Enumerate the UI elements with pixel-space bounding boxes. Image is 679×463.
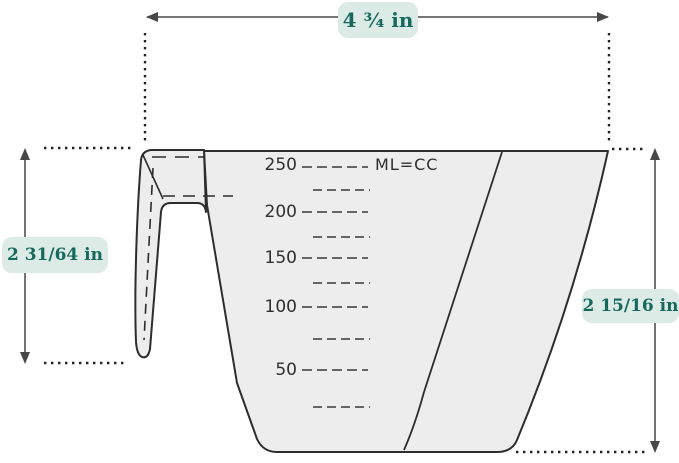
scale-label-150: 150 xyxy=(249,249,297,267)
dimension-label-height-left: 2 31/64 in xyxy=(2,237,108,273)
unit-label: ML=CC xyxy=(375,156,438,174)
dimension-label-height-right: 2 15/16 in xyxy=(582,289,679,323)
arrowhead-up xyxy=(20,148,30,160)
arrowhead-right xyxy=(597,12,609,22)
arrowhead-down xyxy=(20,352,30,364)
scale-label-200: 200 xyxy=(249,203,297,221)
dimension-label-width: 4 ¾ in xyxy=(338,2,418,38)
scale-label-100: 100 xyxy=(249,298,297,316)
scale-label-250: 250 xyxy=(249,156,297,174)
scale-label-50: 50 xyxy=(249,361,297,379)
measuring-cup-drawing xyxy=(0,0,679,463)
arrowhead-up xyxy=(650,148,660,160)
arrowhead-down xyxy=(650,441,660,453)
cup-handle xyxy=(135,150,206,357)
arrowhead-left xyxy=(146,12,158,22)
diagram-canvas: 4 ¾ in 2 31/64 in 2 15/16 in 250 200 150… xyxy=(0,0,679,463)
